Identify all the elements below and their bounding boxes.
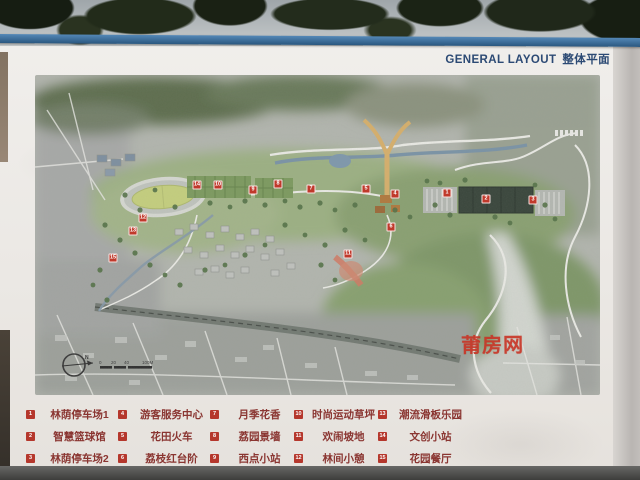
legend-number-badge: 5 bbox=[118, 432, 127, 441]
legend-label: 智慧篮球馆 bbox=[41, 429, 118, 444]
left-edge-shadow bbox=[0, 330, 10, 468]
legend-number-badge: 3 bbox=[26, 454, 35, 463]
legend-item: 5花田火车 bbox=[118, 425, 210, 447]
legend-number-badge: 7 bbox=[210, 410, 219, 419]
left-edge-object bbox=[0, 52, 8, 162]
legend-label: 文创小站 bbox=[393, 429, 468, 444]
legend-item: 10时尚运动草坪 bbox=[294, 403, 378, 425]
legend-item: 13潮流滑板乐园 bbox=[378, 403, 468, 425]
ground-shadow bbox=[0, 466, 640, 480]
legend-label: 荔园景墙 bbox=[225, 429, 294, 444]
legend-item: 14文创小站 bbox=[378, 425, 468, 447]
signboard-photo: GENERAL LAYOUT整体平面 bbox=[0, 0, 640, 480]
title-chinese: 整体平面 bbox=[562, 54, 610, 66]
legend-item: 4游客服务中心 bbox=[118, 403, 210, 425]
board-right-edge bbox=[613, 40, 640, 468]
legend-number-badge: 14 bbox=[378, 432, 387, 441]
legend-number-badge: 8 bbox=[210, 432, 219, 441]
legend-item: 7月季花香 bbox=[210, 403, 294, 425]
legend-label: 潮流滑板乐园 bbox=[393, 407, 468, 422]
legend-label: 时尚运动草坪 bbox=[309, 407, 378, 422]
legend-label: 西点小站 bbox=[225, 451, 294, 466]
legend-number-badge: 1 bbox=[26, 410, 35, 419]
legend-number-badge: 9 bbox=[210, 454, 219, 463]
legend-item: 1林荫停车场1 bbox=[26, 403, 118, 425]
legend-number-badge: 2 bbox=[26, 432, 35, 441]
legend-number-badge: 4 bbox=[118, 410, 127, 419]
legend: 1林荫停车场12智慧篮球馆3林荫停车场24游客服务中心5花田火车6荔枝红台阶7月… bbox=[26, 403, 468, 469]
legend-label: 花田火车 bbox=[133, 429, 210, 444]
legend-number-badge: 13 bbox=[378, 410, 387, 419]
legend-number-badge: 11 bbox=[294, 432, 303, 441]
legend-number-badge: 12 bbox=[294, 454, 303, 463]
legend-label: 游客服务中心 bbox=[133, 407, 210, 422]
legend-label: 欢闹坡地 bbox=[309, 429, 378, 444]
legend-label: 林间小憩 bbox=[309, 451, 378, 466]
legend-label: 林荫停车场1 bbox=[41, 407, 118, 422]
watermark: 莆房网 bbox=[461, 329, 524, 359]
legend-label: 林荫停车场2 bbox=[41, 451, 118, 466]
legend-item: 2智慧篮球馆 bbox=[26, 425, 118, 447]
legend-item: 8荔园景墙 bbox=[210, 425, 294, 447]
legend-item: 11欢闹坡地 bbox=[294, 425, 378, 447]
legend-number-badge: 6 bbox=[118, 454, 127, 463]
legend-number-badge: 15 bbox=[378, 454, 387, 463]
legend-label: 荔枝红台阶 bbox=[133, 451, 210, 466]
title-english: GENERAL LAYOUT bbox=[445, 54, 556, 66]
page-title: GENERAL LAYOUT整体平面 bbox=[420, 51, 610, 67]
legend-label: 花园餐厅 bbox=[393, 451, 468, 466]
legend-label: 月季花香 bbox=[225, 407, 294, 422]
legend-number-badge: 10 bbox=[294, 410, 303, 419]
